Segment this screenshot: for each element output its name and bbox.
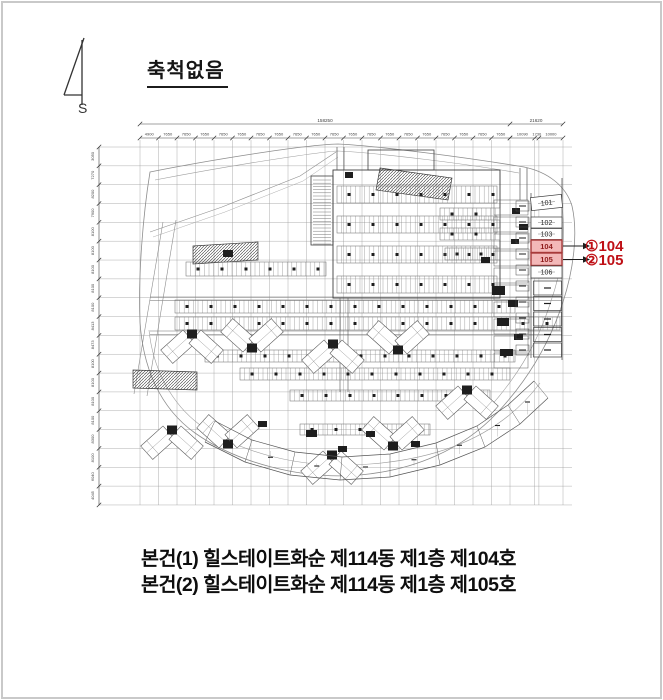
unit-label: 105 (540, 255, 553, 264)
dim-segment-label-left: 3050 (90, 151, 95, 161)
dim-segment-label: 7650 (478, 132, 488, 137)
unit-label: 103 (541, 232, 553, 239)
dim-segment-label-left: 8413 (90, 321, 95, 331)
parking-row (440, 208, 500, 220)
north-arrow-icon (64, 38, 84, 105)
dim-total-main: 158250 (317, 118, 333, 123)
parking-row (186, 262, 326, 276)
dim-segment-label: 7650 (459, 132, 469, 137)
dim-segment-label: 7650 (163, 132, 173, 137)
core-block (258, 421, 267, 427)
unit-label: 101 (540, 199, 552, 207)
dim-segment-label-left: 8100 (90, 377, 95, 387)
dim-segment-label-left: 8100 (90, 283, 95, 293)
dim-segment-label: 7650 (237, 132, 247, 137)
dim-segment-label-left: 8100 (90, 227, 95, 237)
core-block (345, 172, 353, 178)
dim-segment-label: 7650 (385, 132, 395, 137)
dim-segment-label-left: 8100 (90, 264, 95, 274)
dim-segment-label-left: 8100 (90, 302, 95, 312)
dim-segment-label-left: 7900 (90, 208, 95, 218)
building-cluster (367, 321, 430, 355)
core-block (508, 300, 518, 307)
dim-segment-label: 7650 (274, 132, 284, 137)
dim-segment-label-left: 8473 (90, 340, 95, 350)
north-label: S (78, 100, 87, 116)
dim-segment-label: 4900 (145, 132, 155, 137)
dim-total-right: 21620 (530, 118, 543, 123)
dim-segment-label: 7650 (422, 132, 432, 137)
core-block (223, 250, 233, 257)
unit-box-104: 104 (531, 240, 562, 253)
core-block (411, 441, 420, 447)
dim-segment-label: 1730 (532, 132, 542, 137)
unit-box-102: 102 (531, 217, 562, 228)
dim-segment-label-left: 8100 (90, 396, 95, 406)
building-cluster (302, 340, 365, 374)
unit-label: 102 (541, 220, 553, 227)
caption-line-1: 본건(1) 힐스테이트화순 제114동 제1층 제104호 (141, 546, 516, 572)
dim-segment-label: 7650 (182, 132, 192, 137)
parking-row (175, 300, 515, 313)
dim-segment-label-left: 8300 (90, 434, 95, 444)
parking-row (240, 368, 510, 380)
dim-segment-label-left: 8100 (90, 453, 95, 463)
parking-rows (175, 186, 560, 435)
unit-label: 104 (540, 242, 553, 251)
dim-segment-label-left: 8100 (90, 358, 95, 368)
dim-segment-label-left: 8200 (90, 189, 95, 199)
callout-unit-105: ②105 (585, 251, 623, 269)
parking-row (440, 228, 500, 240)
building-cluster (141, 426, 204, 460)
building-cluster (436, 386, 499, 420)
building-cluster (221, 319, 284, 353)
dim-segment-label: 10000 (545, 132, 557, 137)
core-block (481, 257, 490, 263)
core-block (366, 431, 375, 437)
dim-segment-label: 10090 (517, 132, 529, 137)
caption-line-2: 본건(2) 힐스테이트화순 제114동 제1층 제105호 (141, 572, 516, 598)
unit-box-105: 105 (531, 253, 562, 266)
dim-segment-label: 7650 (311, 132, 321, 137)
unit-clusters (141, 319, 499, 485)
dim-segment-label: 7650 (367, 132, 377, 137)
dim-segment-label-left: 6040 (90, 471, 95, 481)
dim-segment-label: 7650 (330, 132, 340, 137)
dim-segment-label: 7650 (293, 132, 303, 137)
stair-hatch (133, 370, 197, 390)
dim-segment-label-left: 8100 (90, 415, 95, 425)
caption-block: 본건(1) 힐스테이트화순 제114동 제1층 제104호 본건(2) 힐스테이… (141, 546, 516, 598)
stair-hatch (376, 168, 452, 200)
core-block (338, 446, 347, 452)
core-block (500, 349, 513, 356)
unit-box-101: 101 (530, 194, 562, 210)
dim-segment-label: 7650 (219, 132, 229, 137)
dim-segment-label-left: 8100 (90, 245, 95, 255)
core-block (492, 286, 505, 295)
unit-box-103: 103 (531, 229, 562, 240)
dim-segment-label: 7650 (348, 132, 358, 137)
building-cluster (197, 415, 260, 449)
unit-box-106: 106 (531, 266, 562, 278)
dim-segment-label: 7650 (200, 132, 210, 137)
core-block (497, 318, 509, 326)
dim-segment-label-left: 4045 (90, 490, 95, 500)
dim-segment-label: 7650 (404, 132, 414, 137)
core-block (306, 430, 317, 437)
dim-segment-label: 7650 (256, 132, 266, 137)
document-page: 축척없음 S 101102103104105106 49007650765076… (0, 0, 663, 700)
unit-label: 106 (541, 270, 553, 277)
dim-segment-label: 7650 (496, 132, 506, 137)
dim-segment-label-left: 7270 (90, 170, 95, 180)
dim-segment-label: 7650 (441, 132, 451, 137)
